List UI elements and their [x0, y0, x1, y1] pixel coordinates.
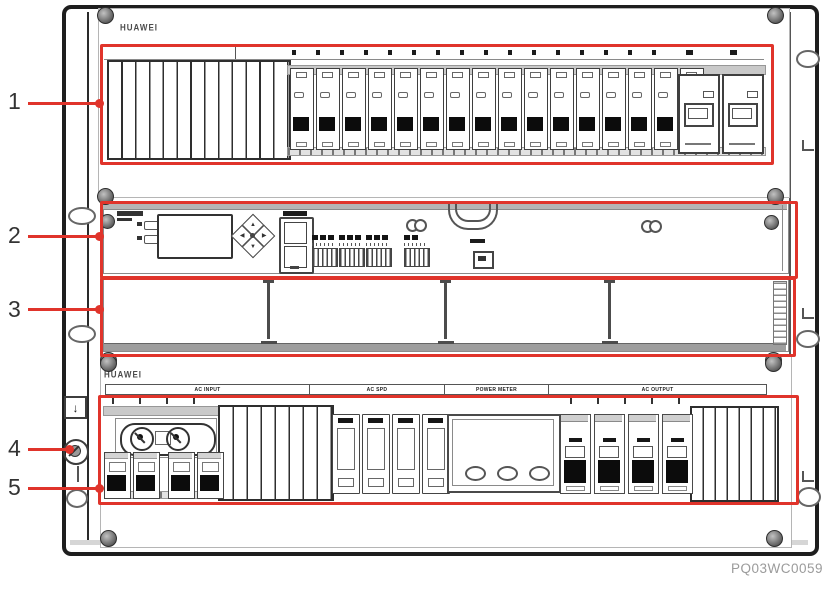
- leader-line-4: [28, 448, 68, 451]
- section-label-ac-output: AC OUTPUT: [549, 384, 767, 395]
- leader-dot-3: [95, 305, 104, 314]
- callout-number-2: 2: [8, 224, 21, 247]
- callout-box-3: [100, 277, 796, 357]
- flange-l-mark: [802, 471, 814, 482]
- callout-box-2: [100, 201, 798, 279]
- section-label-ac-spd: AC SPD: [310, 384, 445, 395]
- screw: [767, 7, 784, 24]
- callout-box-5: [98, 395, 799, 505]
- leader-dot-5: [95, 484, 104, 493]
- power-system-front-view-diagram: ↓ HUAWEI: [0, 0, 825, 589]
- flange-oval-cutout: [796, 330, 820, 348]
- ground-symbol-icon: ↓: [64, 396, 87, 419]
- section-label-ac-input: AC INPUT: [105, 384, 310, 395]
- huawei-logo-top: HUAWEI: [120, 22, 158, 32]
- leader-line-1: [28, 102, 97, 105]
- flange-oval-cutout: [796, 50, 820, 68]
- flange-oval-cutout: [68, 207, 96, 225]
- callout-number-1: 1: [8, 90, 21, 113]
- callout-number-3: 3: [8, 298, 21, 321]
- leader-line-5: [28, 487, 97, 490]
- screw: [100, 355, 117, 372]
- screw: [766, 530, 783, 547]
- callout-number-4: 4: [8, 437, 21, 460]
- flange-tick-mark: [77, 466, 79, 482]
- ac-section-label-bar: AC INPUT AC SPD POWER METER AC OUTPUT: [105, 384, 767, 395]
- screw: [97, 7, 114, 24]
- callout-box-1: [100, 44, 774, 165]
- callout-number-5: 5: [8, 476, 21, 499]
- leader-dot-4: [65, 445, 74, 454]
- screw: [100, 530, 117, 547]
- leader-line-2: [28, 235, 97, 238]
- flange-l-mark: [802, 308, 814, 319]
- flange-oval-cutout: [66, 489, 88, 508]
- figure-code: PQ03WC0059: [716, 561, 823, 576]
- flange-oval-cutout: [68, 325, 96, 343]
- section-label-power-meter: POWER METER: [445, 384, 549, 395]
- flange-l-mark: [802, 140, 814, 151]
- left-mounting-flange-edge: [87, 12, 89, 544]
- screw: [765, 355, 782, 372]
- leader-line-3: [28, 308, 97, 311]
- leader-dot-1: [95, 99, 104, 108]
- leader-dot-2: [95, 232, 104, 241]
- flange-oval-cutout: [797, 487, 821, 507]
